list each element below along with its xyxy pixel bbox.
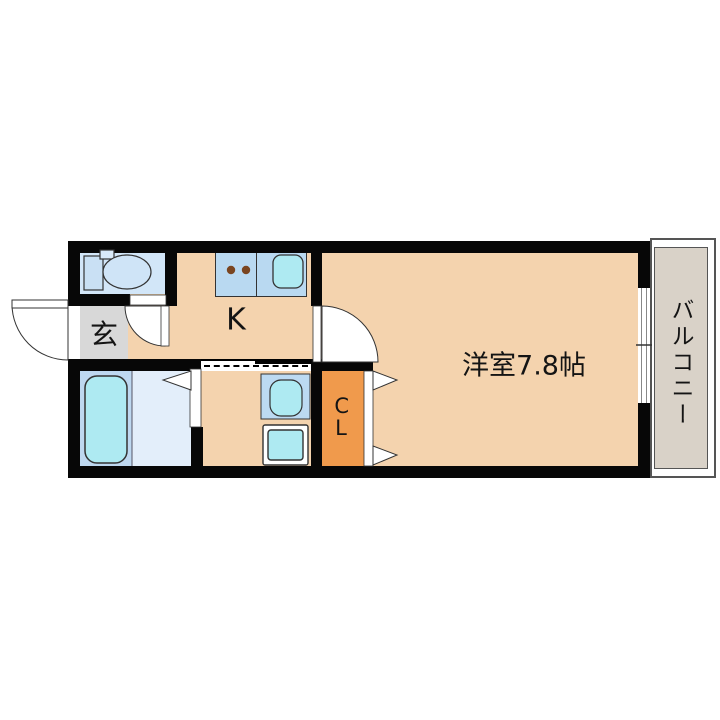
mainroom-door-icon — [313, 306, 378, 362]
bath-door-icon — [163, 369, 201, 427]
symbols-layer — [0, 0, 720, 720]
stove-burners-icon — [227, 266, 250, 274]
washbasin-icon — [261, 374, 310, 419]
front-door-icon — [12, 300, 68, 360]
hall-door-icon — [125, 295, 169, 346]
kitchen-sink-icon — [273, 255, 303, 288]
entrance-label: 玄 — [90, 313, 118, 353]
kitchen-label: K — [226, 303, 246, 338]
main-room-label: 洋室7.8帖 — [462, 344, 586, 383]
closet-label: CL — [334, 395, 347, 439]
closet-door-icon — [364, 371, 397, 466]
floor-plan: 玄 K 洋室7.8帖 CL バルコニー — [0, 0, 720, 720]
balcony-label: バルコニー — [663, 298, 697, 428]
bathtub-icon — [85, 376, 127, 463]
washing-machine-icon — [263, 425, 308, 465]
toilet-icon — [84, 250, 151, 290]
window-icon — [636, 288, 652, 403]
